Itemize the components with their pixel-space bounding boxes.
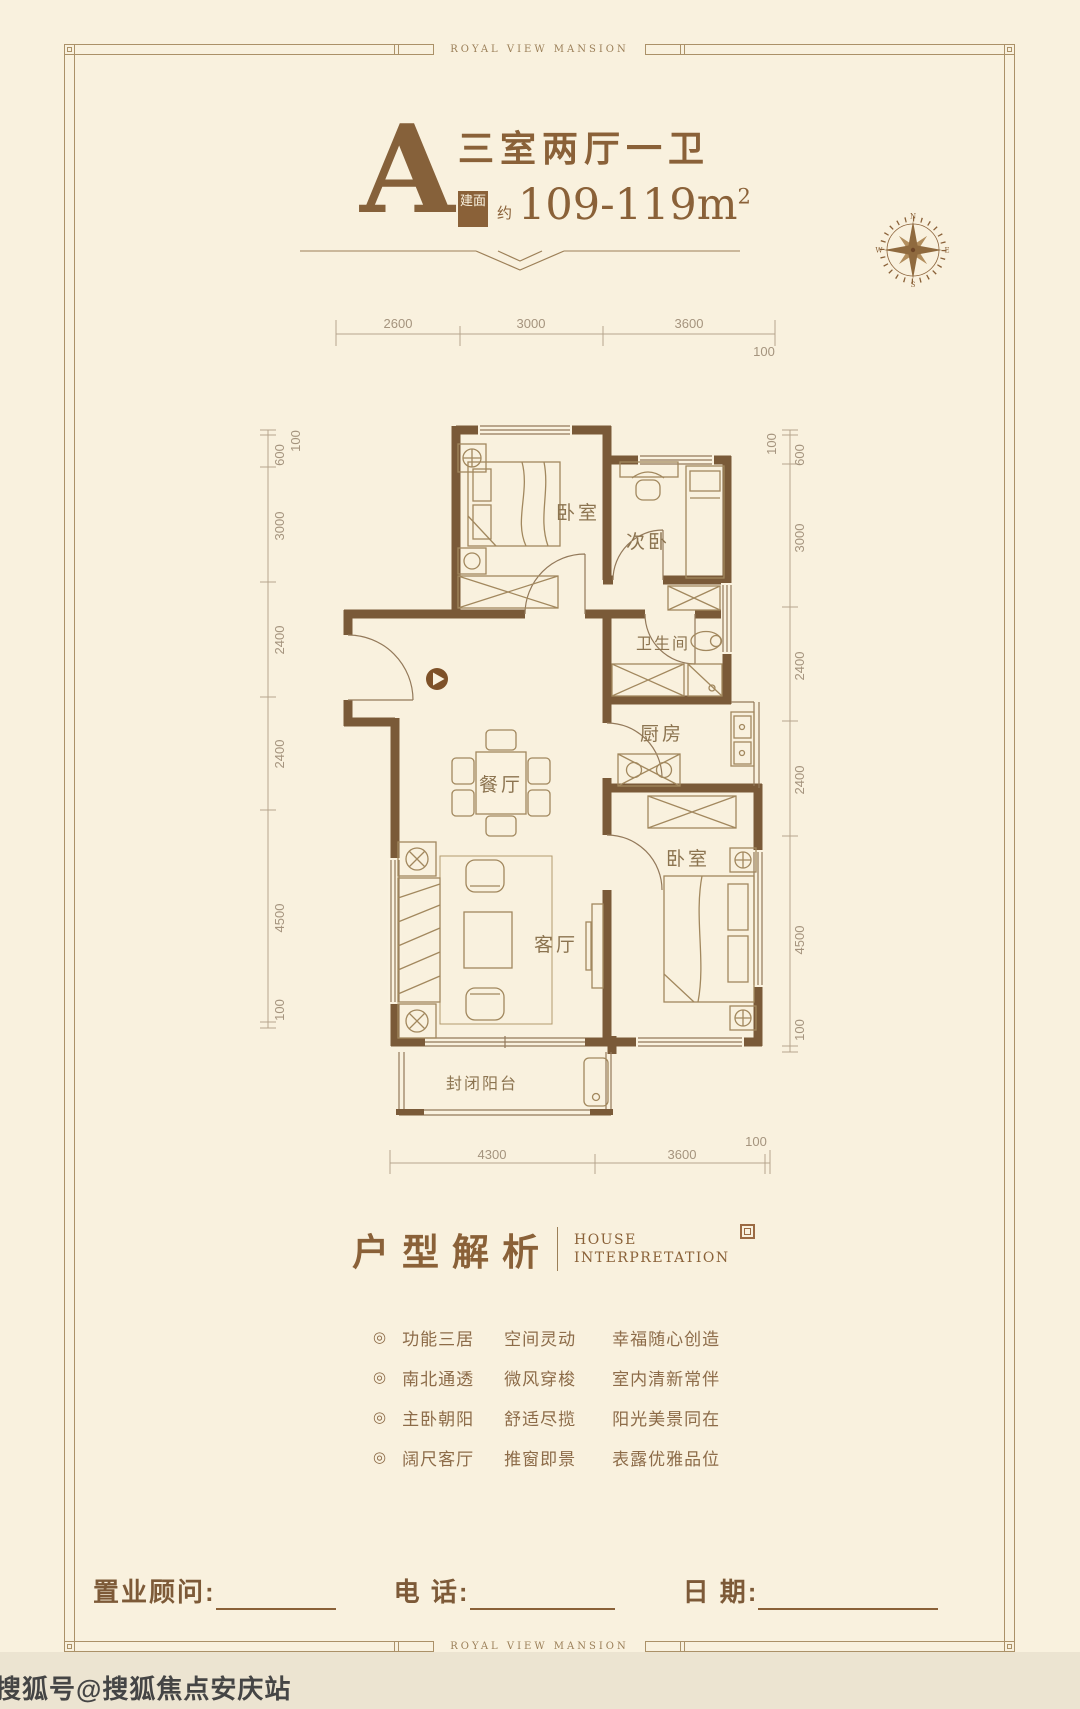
corner-ornament-icon — [64, 44, 75, 55]
feature-col2: 微风穿梭 — [504, 1365, 582, 1390]
date-label: 日 期: — [683, 1572, 759, 1610]
consultant-label: 置业顾问: — [93, 1572, 216, 1610]
entry-arrow-icon — [426, 668, 448, 690]
feature-row: ◎ 南北通透 微风穿梭 室内清新常伴 — [373, 1368, 720, 1386]
unit-letter: A — [360, 108, 455, 230]
section-subtitle-en: HOUSE INTERPRETATION — [574, 1231, 730, 1267]
area-approx: 约 — [497, 202, 512, 223]
section-header: 户型解析 HOUSE INTERPRETATION — [352, 1222, 755, 1276]
watermark: 搜狐号@搜狐焦点安庆站 — [0, 1669, 291, 1706]
compass-icon: N E S W — [875, 212, 951, 288]
dim-label: 100 — [288, 430, 303, 452]
area-number: 109-119m — [518, 180, 737, 230]
dim-label: 2400 — [792, 766, 807, 795]
compass-e: E — [944, 247, 949, 255]
date-blank-line — [758, 1582, 938, 1610]
dim-label: 100 — [764, 433, 779, 455]
feature-col3: 幸福随心创造 — [612, 1325, 720, 1350]
corner-ornament-icon — [1004, 44, 1015, 55]
dim-label: 2400 — [272, 626, 287, 655]
corner-ornament-icon — [64, 1641, 75, 1652]
section-subtitle-line2: INTERPRETATION — [574, 1250, 730, 1266]
dim-label: 3600 — [668, 1147, 697, 1162]
feature-col1: 功能三居 — [402, 1325, 478, 1350]
feature-row: ◎ 阔尺客厅 推窗即景 表露优雅品位 — [373, 1448, 720, 1466]
area-tag-badge: 建面 — [458, 191, 488, 227]
unit-title: 三室两厅一卫 — [458, 120, 751, 172]
door-arcs — [348, 530, 695, 890]
dim-label: 3000 — [517, 316, 546, 331]
section-subtitle-line1: HOUSE — [574, 1232, 637, 1248]
feature-col3: 阳光美景同在 — [612, 1405, 720, 1430]
room-label: 次卧 — [626, 531, 670, 553]
feature-col1: 主卧朝阳 — [402, 1405, 478, 1430]
dim-label: 100 — [745, 1134, 767, 1149]
dim-label: 100 — [792, 1019, 807, 1041]
feature-list: ◎ 功能三居 空间灵动 幸福随心创造 ◎ 南北通透 微风穿梭 室内清新常伴 ◎ … — [373, 1328, 720, 1488]
bullet-icon: ◎ — [373, 1448, 387, 1466]
room-label: 卧室 — [556, 502, 600, 524]
dim-label: 2400 — [792, 652, 807, 681]
floor-plan: 卧室 次卧 卫生间 厨房 餐厅 客厅 卧室 封闭阳台 2600 3000 360… — [245, 290, 820, 1200]
dim-label: 3000 — [792, 524, 807, 553]
feature-col2: 推窗即景 — [504, 1445, 582, 1470]
area-exponent: 2 — [737, 185, 750, 209]
room-label: 餐厅 — [479, 774, 523, 796]
feature-col2: 空间灵动 — [504, 1325, 582, 1350]
dim-label: 4500 — [272, 904, 287, 933]
feature-row: ◎ 功能三居 空间灵动 幸福随心创造 — [373, 1328, 720, 1346]
feature-col3: 室内清新常伴 — [612, 1365, 720, 1390]
room-label: 卫生间 — [636, 635, 690, 653]
area-value: 109-119m2 — [518, 184, 751, 227]
dim-label: 600 — [272, 444, 287, 466]
feature-row: ◎ 主卧朝阳 舒适尽揽 阳光美景同在 — [373, 1408, 720, 1426]
dim-label: 4300 — [478, 1147, 507, 1162]
bullet-icon: ◎ — [373, 1408, 387, 1426]
dim-label: 100 — [753, 344, 775, 359]
compass-w: W — [875, 247, 883, 255]
corner-ornament-icon — [1004, 1641, 1015, 1652]
compass-n: N — [910, 213, 916, 221]
dim-label: 2400 — [272, 740, 287, 769]
dim-label: 3600 — [675, 316, 704, 331]
frame-top-band: ROYAL VIEW MANSION — [64, 44, 1015, 55]
feature-col1: 阔尺客厅 — [402, 1445, 478, 1470]
brand-banner: ROYAL VIEW MANSION — [433, 1641, 645, 1652]
dim-label: 4500 — [792, 926, 807, 955]
dim-label: 100 — [272, 999, 287, 1021]
compass-s: S — [911, 281, 916, 288]
consultant-blank-line — [216, 1582, 336, 1610]
windows-layer — [391, 426, 762, 1115]
phone-label: 电 话: — [394, 1572, 470, 1610]
walls-layer — [344, 426, 762, 1054]
dim-label: 2600 — [384, 316, 413, 331]
room-label: 封闭阳台 — [446, 1075, 518, 1093]
room-label: 卧室 — [666, 848, 710, 870]
phone-blank-line — [470, 1582, 615, 1610]
feature-col2: 舒适尽揽 — [504, 1405, 582, 1430]
title-block: A 三室两厅一卫 建面 约 109-119m2 — [318, 96, 798, 236]
feature-col1: 南北通透 — [402, 1365, 478, 1390]
section-title: 户型解析 — [352, 1222, 552, 1276]
seal-icon — [740, 1224, 755, 1239]
frame-bottom-band: ROYAL VIEW MANSION — [64, 1641, 1015, 1652]
dim-label: 3000 — [272, 512, 287, 541]
feature-col3: 表露优雅品位 — [612, 1445, 720, 1470]
bullet-icon: ◎ — [373, 1368, 387, 1386]
section-divider — [557, 1227, 558, 1271]
bullet-icon: ◎ — [373, 1328, 387, 1346]
brand-banner: ROYAL VIEW MANSION — [433, 44, 645, 55]
room-label: 厨房 — [640, 723, 684, 745]
dim-label: 600 — [792, 444, 807, 466]
footer-form: 置业顾问: 电 话: 日 期: — [93, 1572, 938, 1610]
dimension-labels: 2600 3000 3600 100 4300 3600 100 100 600… — [272, 316, 807, 1162]
room-label: 客厅 — [534, 934, 578, 956]
divider-ornament — [300, 242, 740, 274]
